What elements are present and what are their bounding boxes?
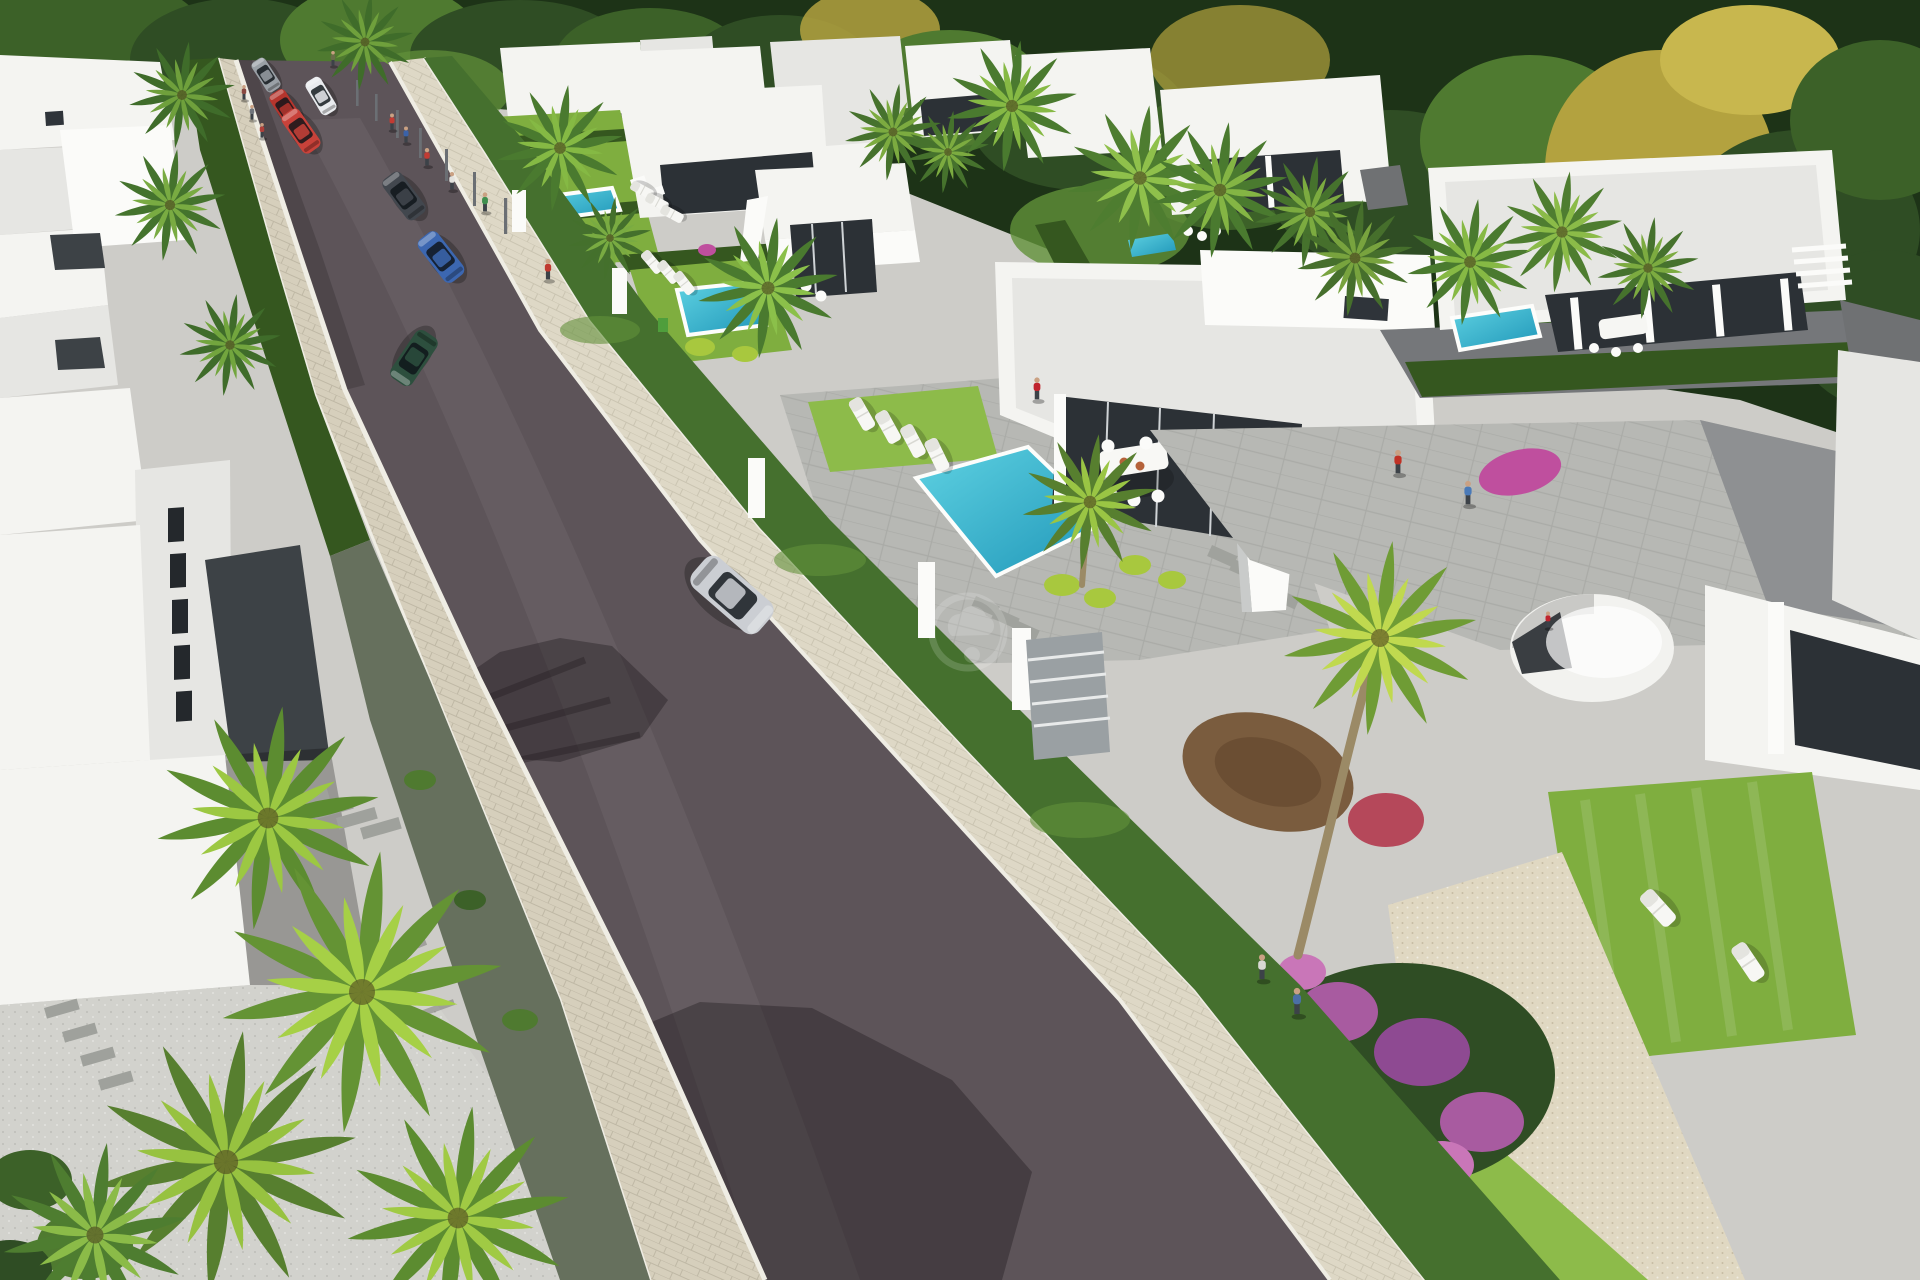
slatted-gate — [1026, 632, 1110, 760]
red-shrub — [1348, 793, 1424, 847]
render-viewport — [0, 0, 1920, 1280]
dome-shell-chair — [1510, 594, 1674, 702]
right-boundary-wall — [1832, 350, 1920, 640]
gate-sign — [658, 318, 668, 332]
villa-development-render — [0, 0, 1920, 1280]
